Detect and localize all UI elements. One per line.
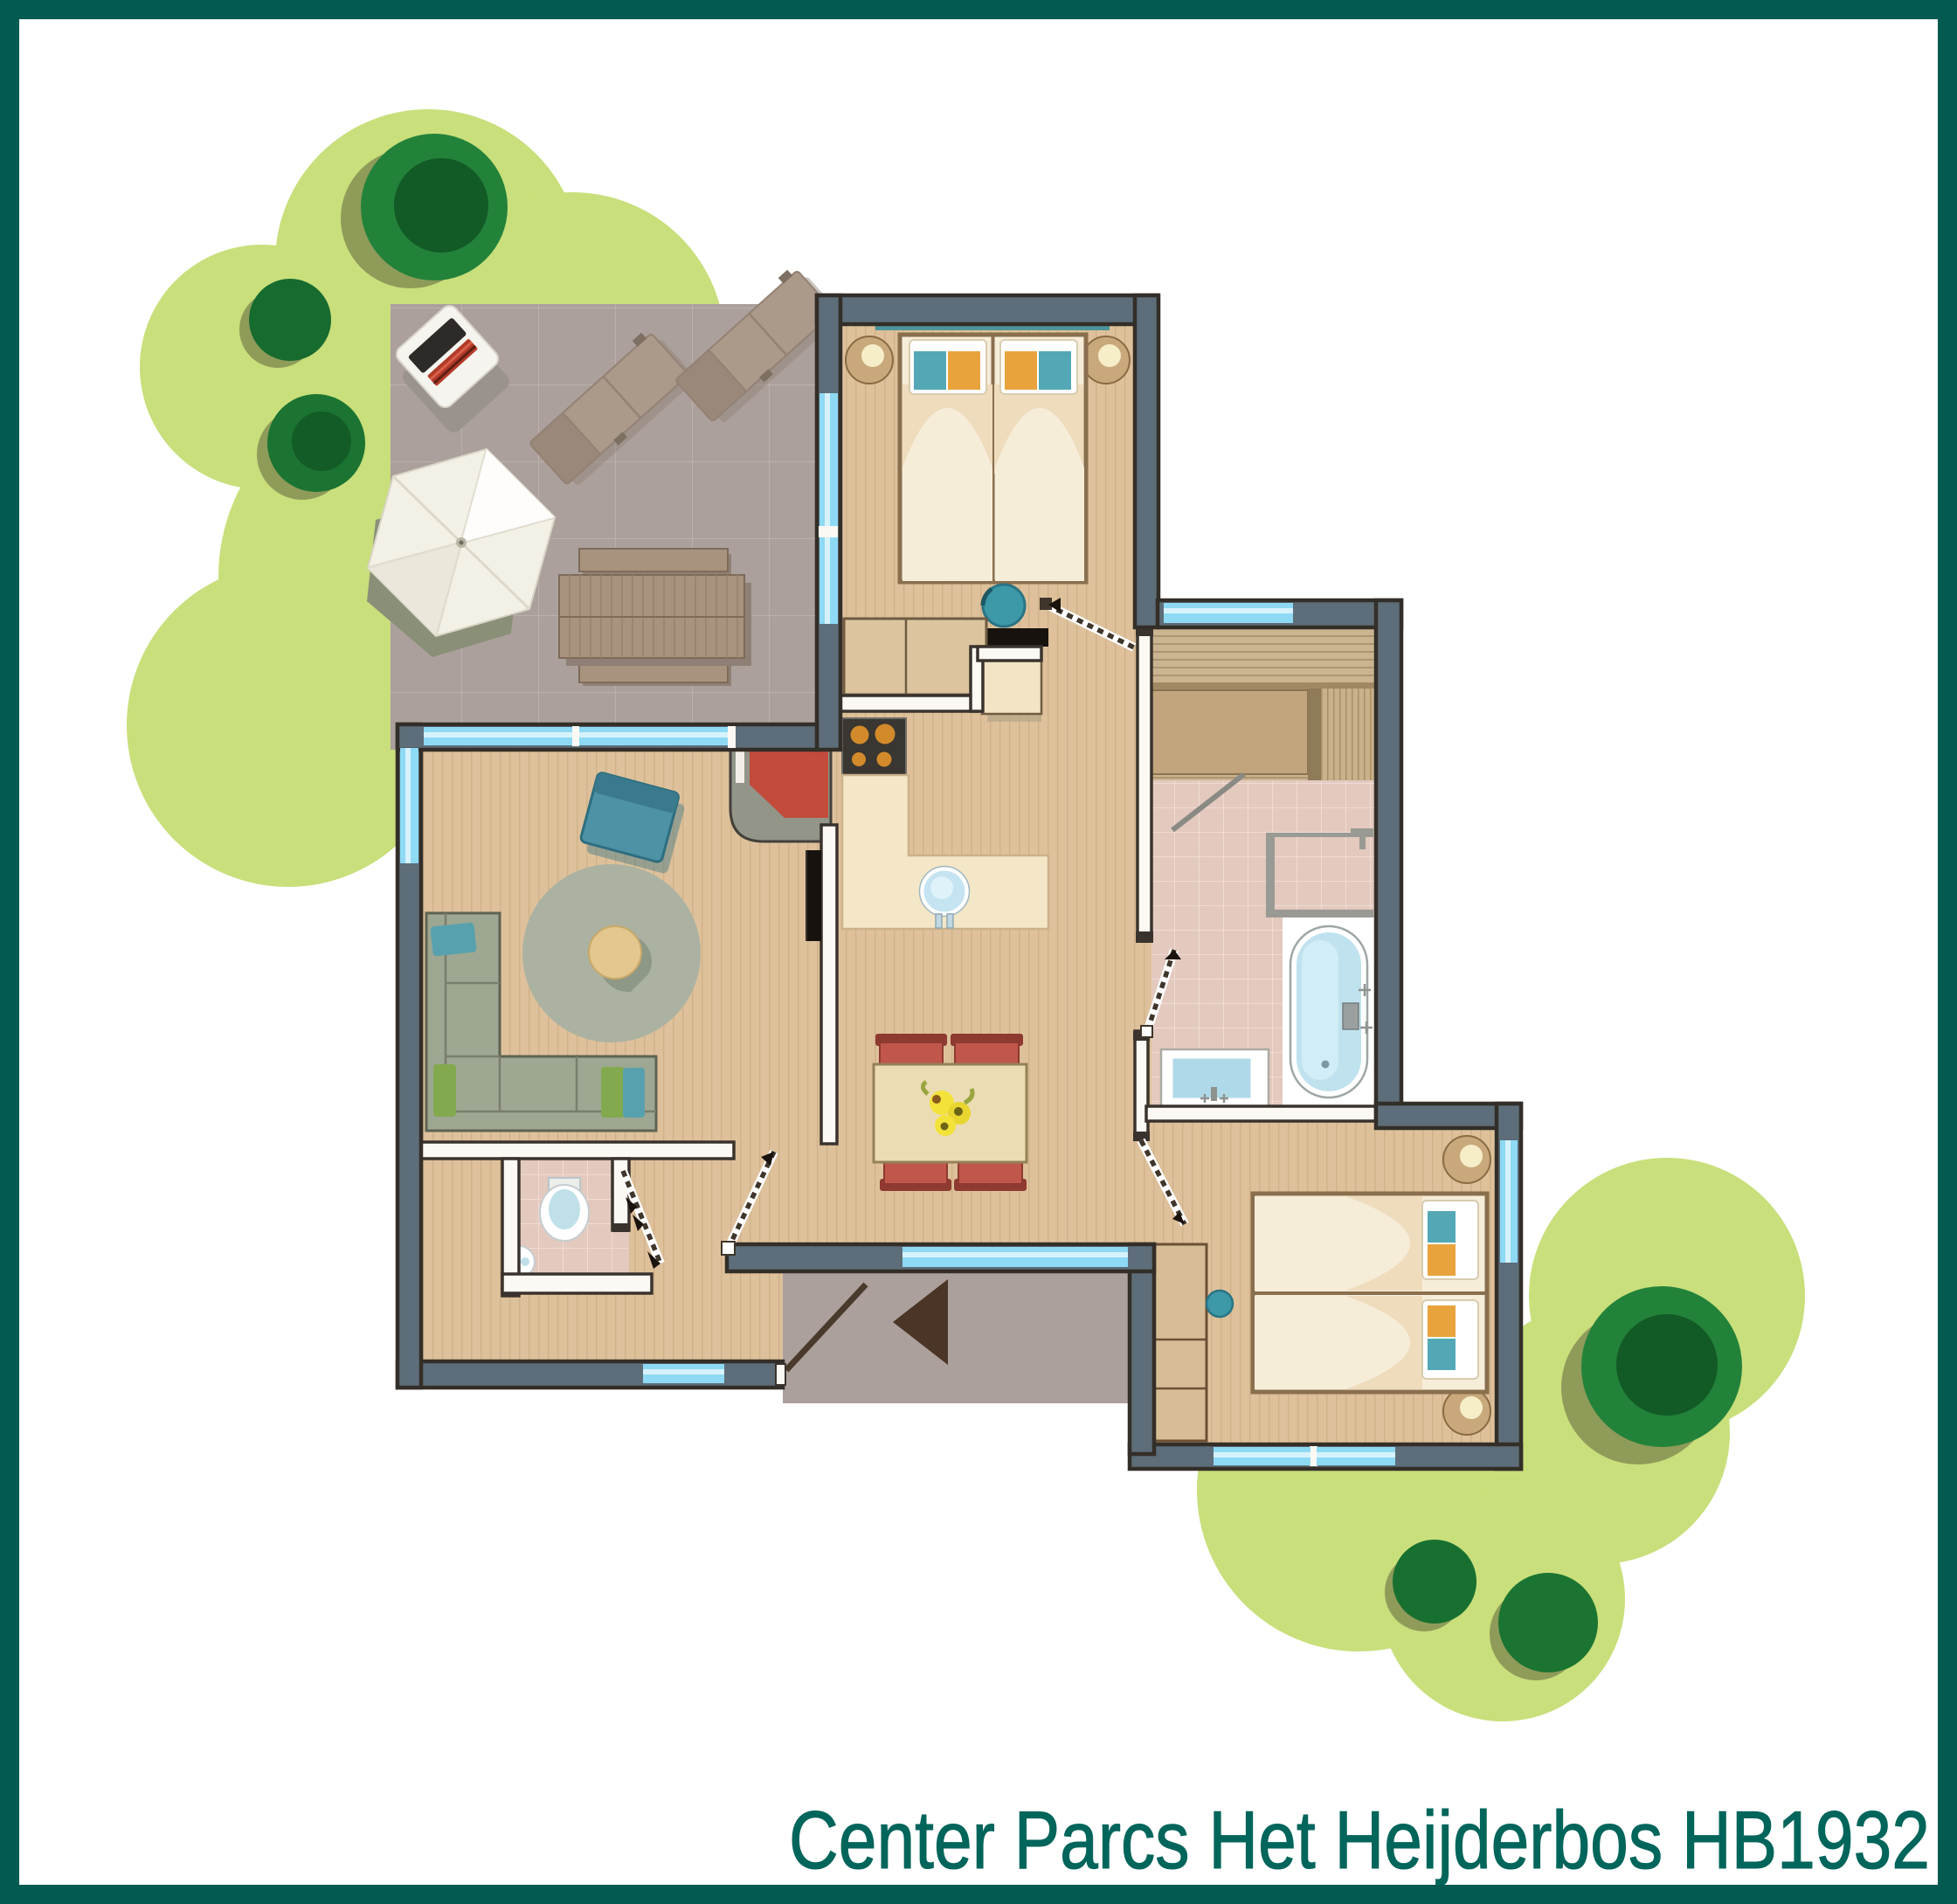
svg-text:Center Parcs Het Heijderbos HB: Center Parcs Het Heijderbos HB1932 bbox=[789, 1794, 1930, 1886]
